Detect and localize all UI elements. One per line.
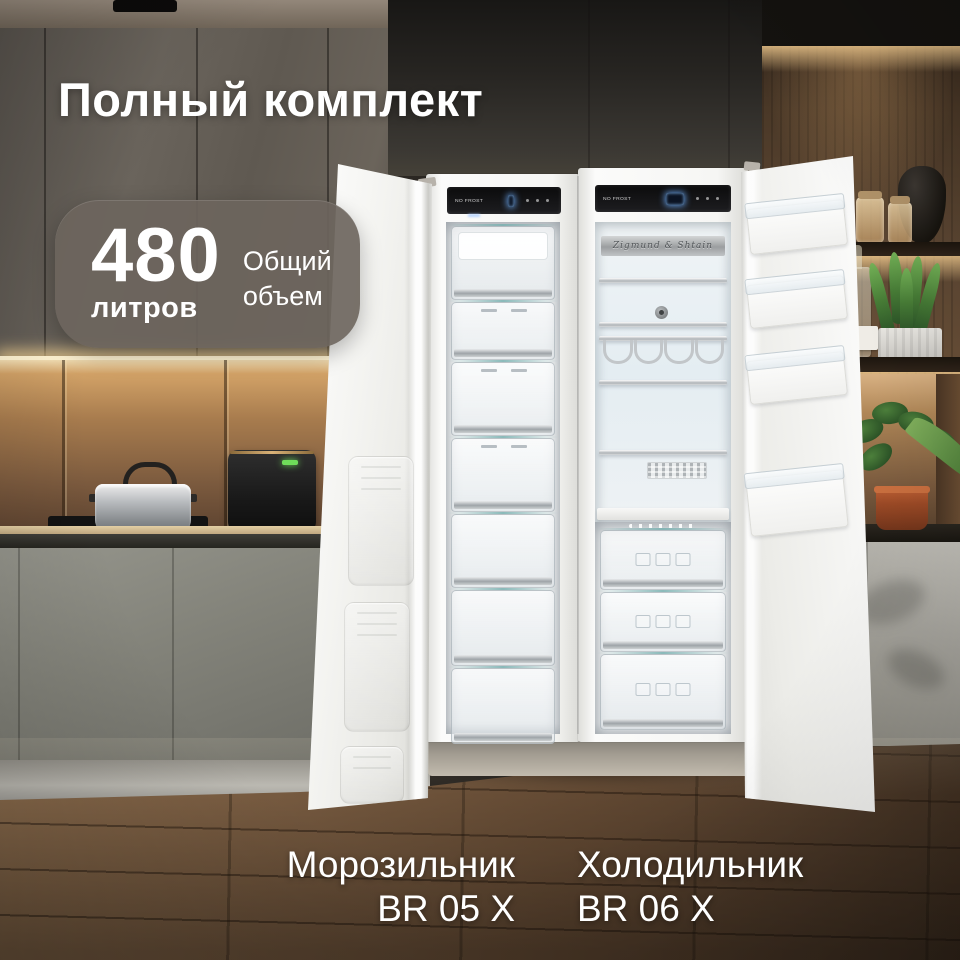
lower-cabinets bbox=[0, 548, 336, 764]
cooker-led bbox=[282, 460, 298, 465]
countertop-edge bbox=[0, 534, 336, 548]
cooking-pot bbox=[95, 462, 191, 534]
drawer-lid bbox=[458, 232, 548, 260]
unit-divider bbox=[577, 176, 579, 734]
cabinet-seam bbox=[172, 548, 174, 764]
brand-plate: Zigmund & Shtain bbox=[601, 236, 725, 256]
freezer-drawer bbox=[451, 362, 555, 436]
door-bin bbox=[746, 199, 848, 255]
badge-caption: Общий объем bbox=[243, 244, 360, 314]
fridge-interior: Zigmund & Shtain bbox=[595, 222, 731, 734]
lock-icon bbox=[655, 306, 668, 319]
freezer-control-panel: NO FROST bbox=[447, 187, 561, 214]
plant-leaf bbox=[900, 268, 913, 332]
fridge-drawer bbox=[600, 592, 726, 652]
fridge-unit: NO FROST Zigmund & Shtain bbox=[578, 168, 748, 742]
door-bin bbox=[746, 275, 848, 329]
led-strip bbox=[762, 46, 960, 72]
temperature-display bbox=[508, 195, 514, 207]
no-frost-label: NO FROST bbox=[455, 198, 483, 204]
terracotta-pot bbox=[876, 486, 928, 530]
glass-seam bbox=[62, 360, 65, 532]
fridge-drawer bbox=[600, 654, 726, 730]
door-panel-emboss bbox=[348, 456, 414, 586]
product-name: Морозильник bbox=[253, 843, 515, 887]
cabinet-seam bbox=[18, 548, 20, 764]
badge-volume-group: 480 литров bbox=[91, 223, 221, 326]
freezer-interior bbox=[446, 222, 560, 734]
freezer-drawer bbox=[451, 668, 555, 744]
door-panel-emboss bbox=[344, 602, 410, 732]
control-icons bbox=[696, 197, 719, 200]
door-panel-emboss bbox=[340, 746, 404, 804]
freezer-unit: NO FROST bbox=[426, 174, 580, 742]
temperature-display bbox=[666, 193, 684, 205]
cabinet-seam bbox=[588, 0, 590, 176]
fridge-drawer bbox=[600, 530, 726, 590]
product-name: Холодильник bbox=[577, 843, 839, 887]
freezer-drawer bbox=[451, 438, 555, 512]
recessed-light bbox=[113, 0, 177, 12]
fridge-compartment: Zigmund & Shtain bbox=[595, 222, 731, 522]
glass-seam bbox=[224, 360, 227, 532]
niche-top bbox=[762, 0, 960, 46]
multicooker bbox=[228, 450, 316, 532]
freezer-drawer bbox=[451, 590, 555, 666]
door-bin bbox=[746, 351, 848, 405]
badge-value: 480 bbox=[91, 223, 221, 290]
cooker-trim bbox=[230, 451, 314, 454]
page-title: Полный комплект bbox=[58, 72, 483, 127]
product-label-fridge: Холодильник BR 06 X bbox=[577, 843, 839, 932]
glass-shelf bbox=[599, 278, 727, 283]
compartment-ledge bbox=[597, 508, 729, 520]
freezer-drawer bbox=[451, 302, 555, 360]
volume-badge: 480 литров Общий объем bbox=[55, 200, 360, 348]
glass-jar bbox=[856, 197, 884, 243]
glass-shelf bbox=[599, 322, 727, 327]
freezer-drawer bbox=[451, 226, 555, 300]
glass-jar bbox=[888, 202, 912, 244]
cabinet-seam bbox=[44, 28, 46, 368]
product-model: BR 06 X bbox=[577, 887, 839, 931]
freezer-drawer bbox=[451, 514, 555, 588]
product-model: BR 05 X bbox=[253, 887, 515, 931]
control-icons bbox=[526, 199, 549, 202]
fridge-control-panel: NO FROST bbox=[595, 185, 731, 212]
panel-led bbox=[468, 214, 480, 217]
cabinet-seam bbox=[728, 0, 730, 176]
wine-rack bbox=[603, 340, 725, 366]
glass-shelf bbox=[599, 380, 727, 385]
product-label-freezer: Морозильник BR 05 X bbox=[253, 843, 515, 932]
no-frost-label: NO FROST bbox=[603, 196, 631, 202]
glass-shelf bbox=[599, 450, 727, 455]
leaf-shadow bbox=[882, 641, 951, 697]
door-bin bbox=[745, 469, 849, 537]
kitchen-scene: NO FROST NO FROST Zigmund & Shtain bbox=[0, 0, 960, 960]
fridge-freezer-section bbox=[595, 522, 731, 734]
vent-grille bbox=[647, 462, 707, 479]
